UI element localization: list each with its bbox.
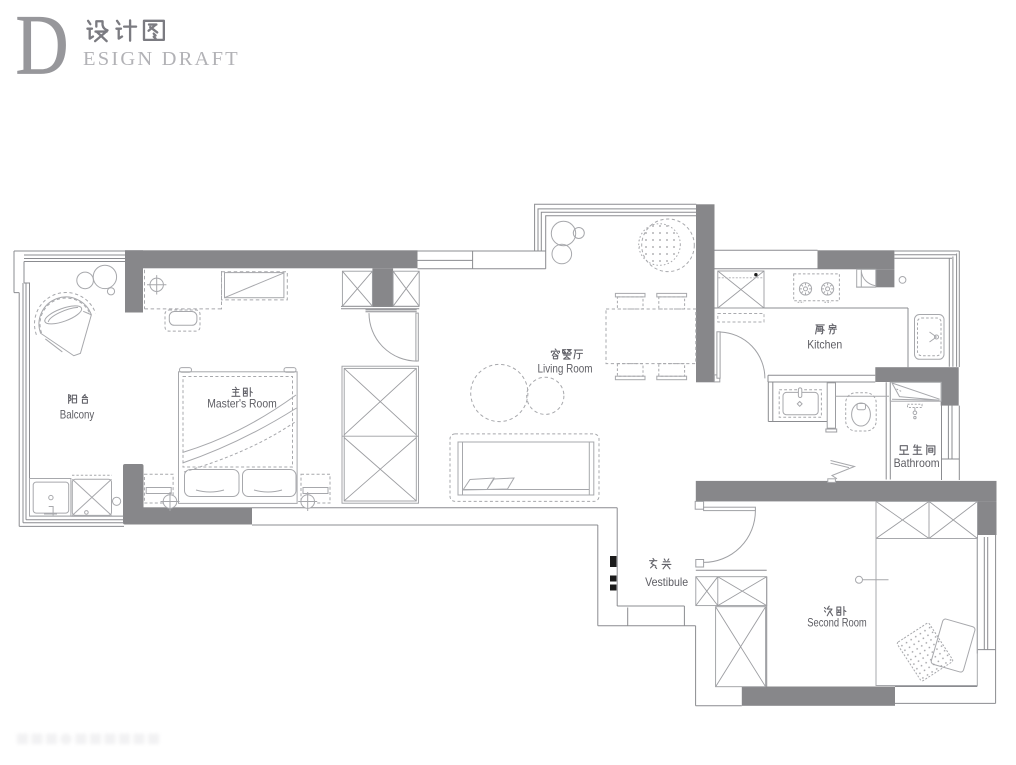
svg-text:Vestibule: Vestibule	[645, 575, 688, 589]
svg-text:Balcony: Balcony	[60, 407, 95, 421]
svg-text:Bathroom: Bathroom	[894, 456, 940, 470]
svg-text:ESIGN DRAFT: ESIGN DRAFT	[83, 48, 240, 70]
svg-text:D: D	[16, 0, 69, 93]
svg-text:Second Room: Second Room	[807, 616, 867, 630]
svg-text:Kitchen: Kitchen	[807, 338, 842, 352]
svg-text:Living Room: Living Room	[538, 362, 593, 376]
svg-text:Master's Room: Master's Room	[207, 397, 277, 411]
